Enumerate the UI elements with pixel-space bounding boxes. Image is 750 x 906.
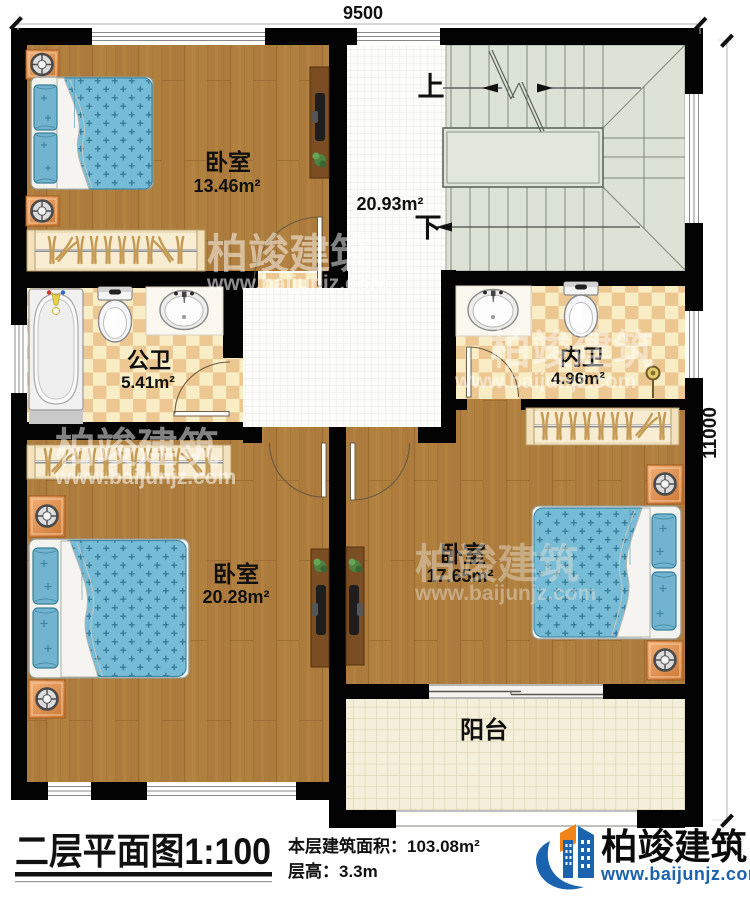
svg-text:5.41m²: 5.41m² [121, 373, 175, 392]
svg-text:层高：3.3m: 层高：3.3m [288, 861, 378, 881]
svg-text:柏竣建筑: 柏竣建筑 [415, 541, 579, 587]
svg-text:阳台: 阳台 [460, 716, 508, 744]
svg-text:柏竣建筑: 柏竣建筑 [601, 826, 747, 867]
svg-text:20.93m²: 20.93m² [356, 194, 423, 214]
svg-text:www.baijunjz.com: www.baijunjz.com [414, 582, 596, 605]
svg-text:www.baijunjz.com: www.baijunjz.com [54, 466, 236, 489]
svg-text:www.baijunjz.com: www.baijunjz.com [206, 272, 388, 295]
svg-text:二层平面图1:100: 二层平面图1:100 [15, 831, 271, 872]
svg-text:下: 下 [415, 213, 442, 243]
svg-text:www.baijunjz.com: www.baijunjz.com [600, 864, 750, 884]
svg-text:柏竣建筑: 柏竣建筑 [490, 327, 654, 373]
svg-text:20.28m²: 20.28m² [202, 587, 269, 607]
svg-text:柏竣建筑: 柏竣建筑 [207, 231, 371, 277]
svg-text:上: 上 [418, 72, 445, 102]
svg-text:13.46m²: 13.46m² [193, 176, 260, 196]
svg-text:11000: 11000 [700, 407, 721, 459]
svg-text:公卫: 公卫 [127, 348, 171, 373]
svg-text:本层建筑面积：103.08m²: 本层建筑面积：103.08m² [288, 836, 480, 856]
svg-text:www.baijunjz.com: www.baijunjz.com [454, 370, 636, 393]
svg-text:卧室: 卧室 [213, 561, 259, 587]
svg-text:卧室: 卧室 [205, 149, 251, 175]
svg-text:柏竣建筑: 柏竣建筑 [55, 425, 219, 471]
svg-text:9500: 9500 [343, 3, 383, 23]
